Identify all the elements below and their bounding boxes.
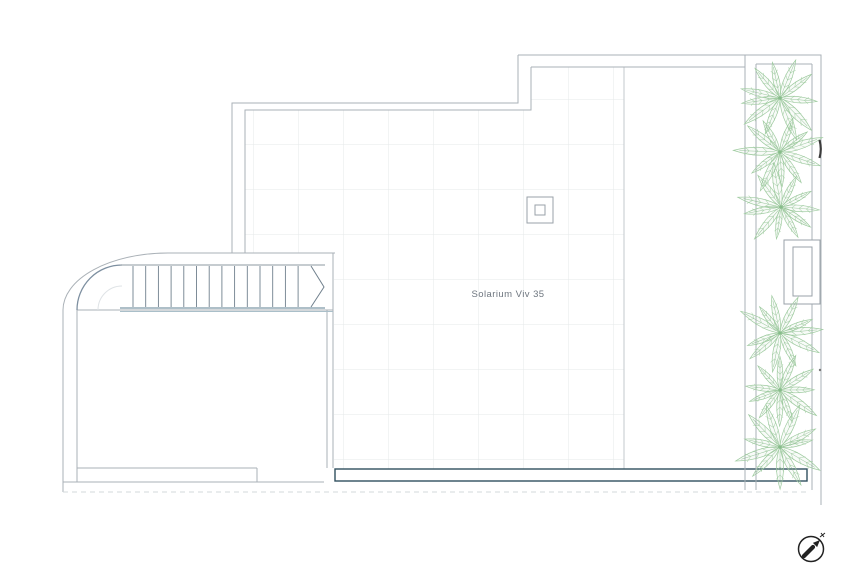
section-marker-icon [820,140,821,158]
palm-tree [737,162,820,241]
roof-vent [527,197,553,223]
floor-plan-canvas: Solarium Viv 35 [0,0,868,581]
left-outer-wall [63,310,77,492]
north-arrow-icon [799,533,826,562]
glass-balustrade [335,469,807,481]
room-bottom-wall [63,468,324,482]
faint-curve [98,286,122,310]
room-right-wall [327,253,333,468]
room-label: Solarium Viv 35 [471,289,544,300]
curved-wall-corner [63,253,168,310]
staircase [120,265,333,312]
floor-plan-drawing: Solarium Viv 35 [0,0,868,581]
vent-inner-square [535,205,545,215]
terrace-tile-grid [245,67,624,469]
stair-treads [133,266,298,307]
compass-north-mark [820,533,825,537]
palm-trunk-center [779,205,783,209]
small-dot-marker [819,369,821,371]
inner-curve [77,265,122,310]
palm-trunk-center [778,150,782,154]
stair-direction-arrow-icon [311,266,324,307]
palm-trunk-center [778,96,782,100]
compass-needle [804,547,813,556]
palm-trunk-center [778,388,782,392]
planter-box [784,240,820,304]
palm-trunk-center [778,331,782,335]
outer-curve [63,253,168,310]
palm-trunk-center [778,445,782,449]
planter-box-inner [793,247,812,296]
